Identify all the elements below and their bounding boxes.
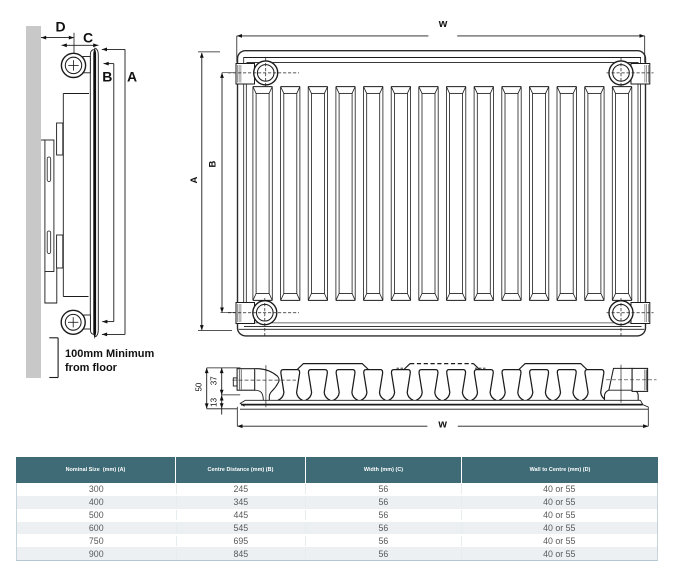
svg-text:from floor: from floor bbox=[65, 362, 118, 374]
svg-text:50: 50 bbox=[195, 382, 204, 391]
svg-text:13: 13 bbox=[209, 397, 218, 406]
svg-text:w: w bbox=[438, 18, 448, 30]
svg-text:A: A bbox=[189, 176, 200, 183]
svg-text:C: C bbox=[83, 29, 93, 45]
svg-text:D: D bbox=[55, 19, 65, 35]
svg-text:B: B bbox=[102, 69, 112, 85]
svg-text:37: 37 bbox=[209, 376, 218, 385]
svg-text:w: w bbox=[437, 418, 447, 430]
svg-text:A: A bbox=[127, 69, 137, 85]
svg-text:100mm Minimum: 100mm Minimum bbox=[65, 348, 154, 360]
svg-text:B: B bbox=[208, 160, 219, 167]
